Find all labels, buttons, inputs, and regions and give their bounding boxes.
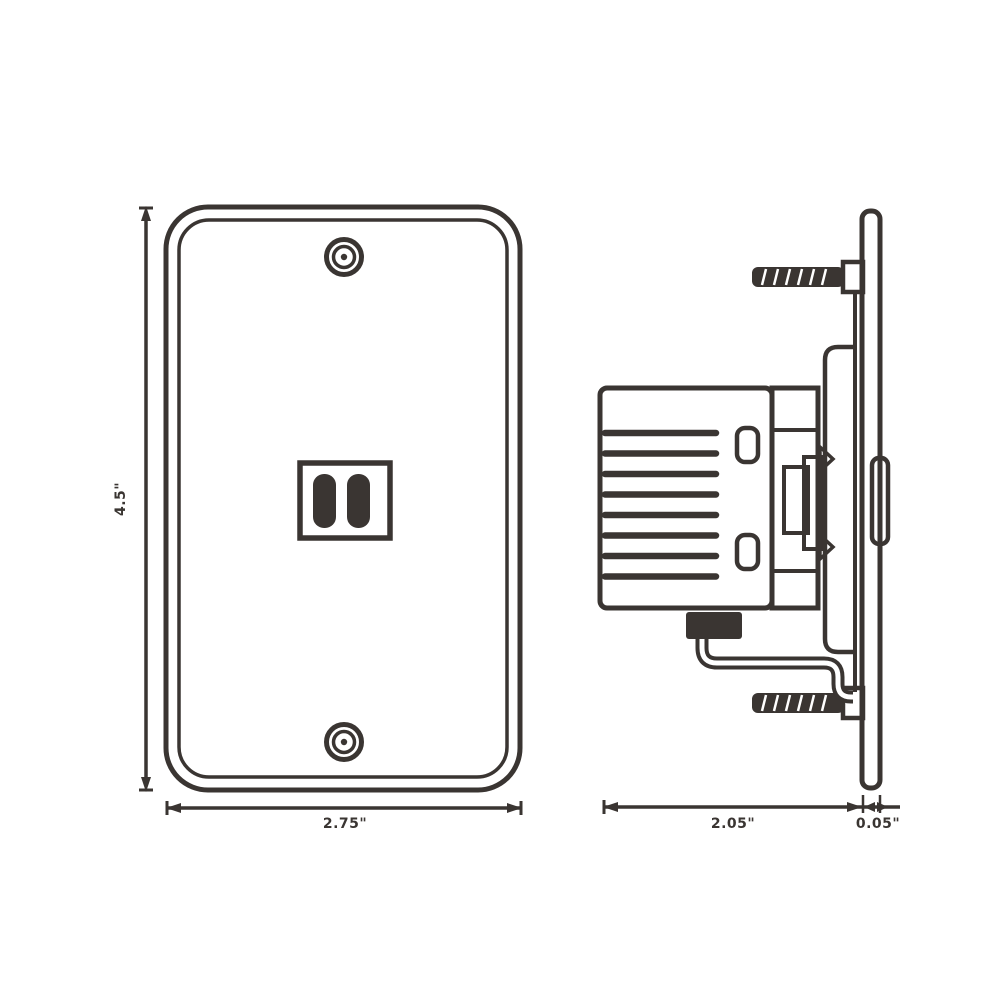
thickness-arrow-right	[877, 802, 888, 812]
wallplate-outer-outline	[166, 207, 520, 790]
side-top-screw	[752, 262, 863, 292]
thickness-dim-label: 0.05"	[856, 816, 900, 832]
bottom-screw-center-dot	[341, 739, 347, 745]
cable-clamp	[686, 612, 742, 639]
front-height-dimension: 4.5"	[113, 206, 153, 792]
jack-opening	[300, 463, 390, 538]
jack-slot-right	[347, 474, 370, 528]
wallplate-inner-outline	[179, 220, 507, 777]
side-view	[600, 211, 888, 788]
front-width-dimension: 2.75"	[166, 801, 522, 832]
housing-mount-section	[772, 388, 818, 608]
mounting-yoke	[825, 347, 853, 652]
width-dim-label: 2.75"	[323, 816, 367, 832]
drawing-canvas: 4.5" 2.75"	[0, 0, 1000, 1000]
housing-slot-bottom	[737, 535, 758, 569]
jack-slot-left	[313, 474, 336, 528]
plate-thickness-dimension: 0.05"	[856, 795, 900, 832]
top-screw-center-dot	[341, 254, 347, 260]
technical-drawing: 4.5" 2.75"	[0, 0, 1000, 1000]
height-dim-label: 4.5"	[113, 482, 129, 516]
top-screw	[327, 240, 362, 275]
bottom-screw	[327, 725, 362, 760]
housing-slot-top	[737, 428, 758, 462]
depth-dim-label: 2.05"	[711, 816, 755, 832]
depth-dim-arrow-right	[847, 802, 862, 812]
front-view	[166, 207, 520, 790]
thickness-arrow-left	[864, 802, 875, 812]
housing-fins	[605, 433, 716, 577]
